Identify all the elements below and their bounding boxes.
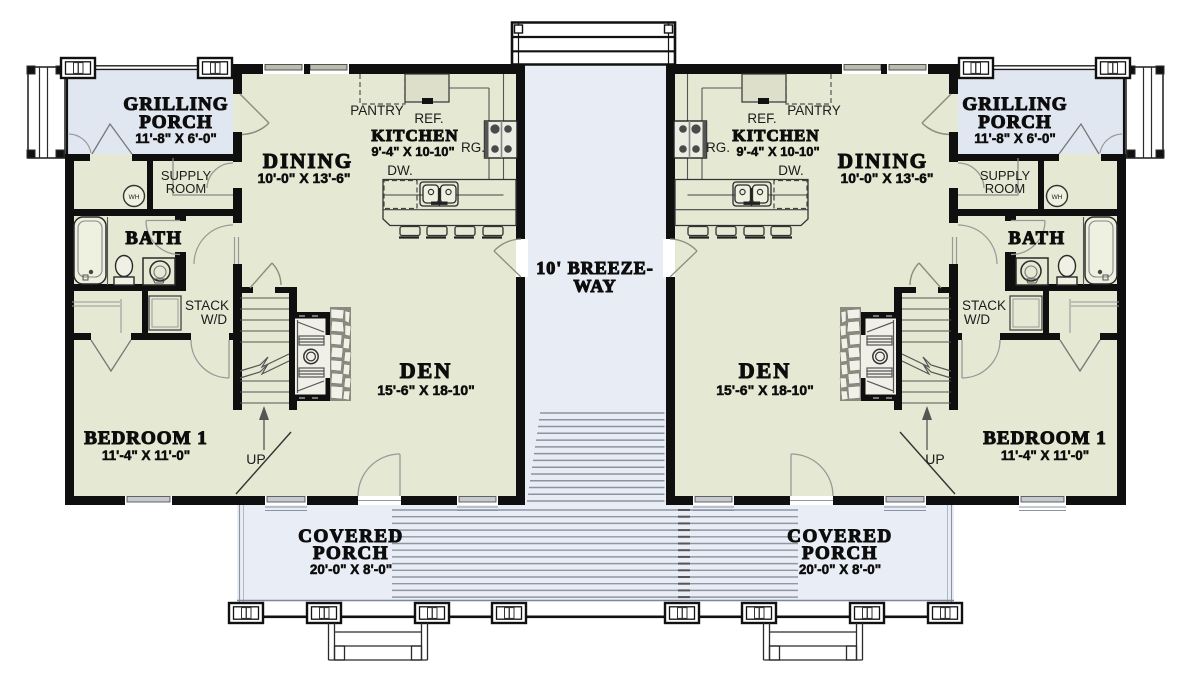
svg-text:RG.: RG. bbox=[461, 140, 485, 155]
svg-text:15'-6" X 18-10": 15'-6" X 18-10" bbox=[716, 382, 814, 398]
svg-text:PORCH: PORCH bbox=[139, 112, 213, 133]
svg-text:10'-0" X 13'-6": 10'-0" X 13'-6" bbox=[257, 170, 350, 186]
svg-text:STACK: STACK bbox=[962, 298, 1006, 313]
svg-text:20'-0" X 8'-0": 20'-0" X 8'-0" bbox=[310, 562, 392, 577]
svg-text:UP: UP bbox=[925, 451, 944, 467]
svg-text:11'-4" X 11'-0": 11'-4" X 11'-0" bbox=[102, 448, 190, 463]
svg-text:WAY: WAY bbox=[573, 276, 616, 296]
svg-text:W/D: W/D bbox=[201, 312, 227, 327]
svg-text:11'-8" X 6'-0": 11'-8" X 6'-0" bbox=[135, 131, 217, 146]
svg-text:KITCHEN: KITCHEN bbox=[732, 126, 819, 145]
svg-text:RG.: RG. bbox=[706, 140, 730, 155]
svg-text:11'-8" X 6'-0": 11'-8" X 6'-0" bbox=[974, 131, 1056, 146]
svg-text:PORCH: PORCH bbox=[802, 543, 878, 564]
svg-text:BATH: BATH bbox=[125, 229, 182, 249]
svg-text:REF.: REF. bbox=[747, 111, 776, 126]
svg-text:KITCHEN: KITCHEN bbox=[371, 126, 458, 145]
svg-text:PORCH: PORCH bbox=[978, 112, 1052, 133]
svg-text:STACK: STACK bbox=[185, 298, 229, 313]
svg-text:9'-4" X 10-10": 9'-4" X 10-10" bbox=[736, 144, 819, 159]
svg-text:BATH: BATH bbox=[1008, 229, 1065, 249]
svg-text:W/D: W/D bbox=[964, 312, 990, 327]
svg-text:PANTRY: PANTRY bbox=[787, 103, 841, 118]
svg-text:ROOM: ROOM bbox=[985, 181, 1025, 196]
svg-text:WH: WH bbox=[1052, 194, 1063, 201]
svg-text:20'-0" X 8'-0": 20'-0" X 8'-0" bbox=[799, 562, 881, 577]
svg-text:DEN: DEN bbox=[400, 358, 452, 383]
svg-text:WH: WH bbox=[129, 194, 140, 201]
svg-text:DEN: DEN bbox=[739, 358, 791, 383]
svg-text:PANTRY: PANTRY bbox=[350, 103, 404, 118]
svg-text:BEDROOM 1: BEDROOM 1 bbox=[84, 428, 208, 449]
svg-text:9'-4" X 10-10": 9'-4" X 10-10" bbox=[371, 144, 454, 159]
svg-text:15'-6" X 18-10": 15'-6" X 18-10" bbox=[377, 382, 475, 398]
svg-text:10'-0" X 13'-6": 10'-0" X 13'-6" bbox=[840, 170, 933, 186]
svg-text:11'-4" X 11'-0": 11'-4" X 11'-0" bbox=[1001, 448, 1089, 463]
svg-text:UP: UP bbox=[246, 451, 265, 467]
svg-text:DW.: DW. bbox=[387, 163, 413, 178]
svg-text:REF.: REF. bbox=[414, 111, 443, 126]
svg-text:PORCH: PORCH bbox=[313, 543, 389, 564]
svg-text:BEDROOM 1: BEDROOM 1 bbox=[983, 428, 1107, 449]
svg-text:DW.: DW. bbox=[778, 163, 804, 178]
svg-text:ROOM: ROOM bbox=[166, 181, 206, 196]
svg-text:10' BREEZE-: 10' BREEZE- bbox=[536, 258, 654, 278]
